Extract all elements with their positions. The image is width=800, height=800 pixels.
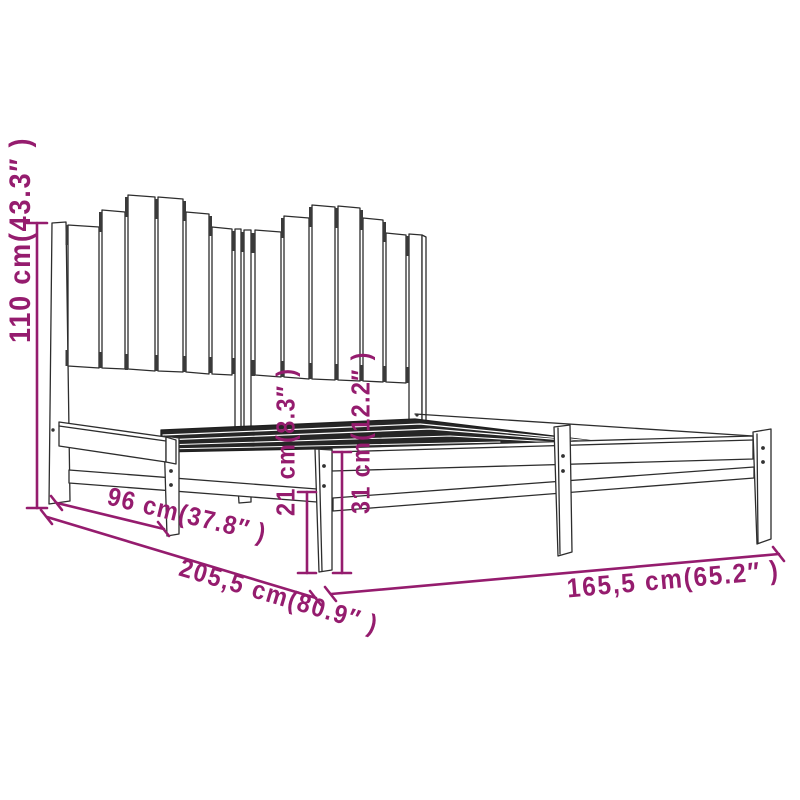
foot-right-leg [753, 429, 771, 544]
left-upper-rail-end [166, 437, 176, 464]
headboard-right-post [409, 234, 422, 421]
dimension-line-clearance [298, 492, 316, 573]
mid-foot-leg [554, 425, 572, 556]
headboard-center-posts [235, 229, 241, 432]
foot-stretcher [333, 467, 754, 511]
bed-frame-line-art [0, 0, 800, 800]
dimension-diagram: 110 cm(43.3″ ) 96 cm(37.8″ ) 205,5 cm(80… [0, 0, 800, 800]
